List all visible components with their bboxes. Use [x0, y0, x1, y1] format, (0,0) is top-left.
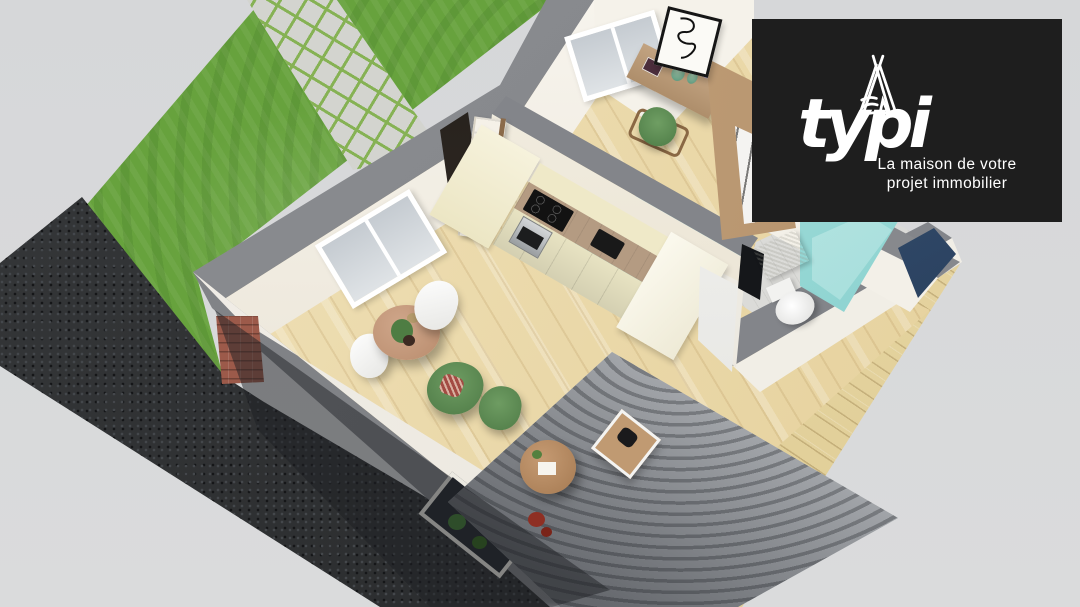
window-mullion — [365, 220, 401, 277]
red-flowers — [541, 527, 552, 537]
patterned-cushion — [438, 372, 466, 399]
tagline-line1: La maison de votre — [877, 156, 1016, 173]
brand-wordmark: typi — [798, 91, 927, 159]
3d-floorplan-render: typi La maison de votre projet immobilie… — [0, 0, 1080, 607]
decor-object — [615, 426, 639, 450]
tagline-line2: projet immobilier — [887, 175, 1008, 192]
coffee-table-plant — [532, 450, 542, 459]
table-decor — [403, 335, 415, 346]
abstract-art-icon — [659, 10, 713, 67]
typi-logo-card: typi La maison de votre projet immobilie… — [752, 19, 1062, 222]
red-flowers — [528, 512, 545, 527]
coffee-table — [520, 440, 576, 494]
brand-tagline: La maison de votre projet immobilier — [864, 155, 1030, 194]
plant — [448, 514, 466, 530]
magazine — [538, 462, 556, 475]
plant — [472, 536, 487, 549]
